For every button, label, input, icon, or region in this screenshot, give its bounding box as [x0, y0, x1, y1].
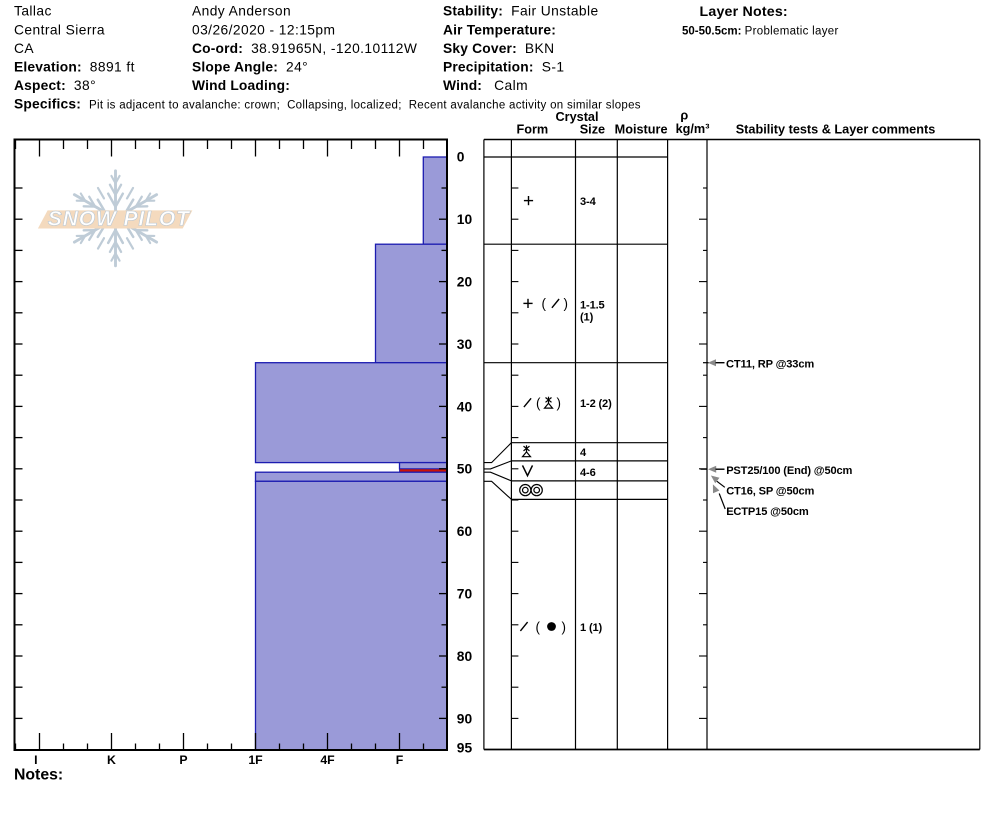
svg-text:4-6: 4-6 — [580, 467, 596, 479]
svg-text:3-4: 3-4 — [580, 196, 597, 208]
svg-text:Wind: Calm: Wind: Calm — [443, 78, 528, 93]
svg-text:): ) — [557, 396, 561, 411]
svg-text:Air Temperature:: Air Temperature: — [443, 22, 556, 37]
svg-text:Tallac: Tallac — [14, 4, 52, 19]
svg-text:): ) — [562, 619, 566, 634]
svg-text:Form: Form — [516, 123, 548, 137]
svg-text:CA: CA — [14, 41, 34, 56]
svg-text:Aspect: 38°: Aspect: 38° — [14, 78, 96, 93]
svg-text:ECTP15 @50cm: ECTP15 @50cm — [726, 506, 809, 518]
svg-text:Stability tests & Layer commen: Stability tests & Layer comments — [736, 123, 936, 137]
svg-text:60: 60 — [457, 524, 473, 539]
svg-text:(: ( — [536, 396, 541, 411]
svg-text:20: 20 — [457, 275, 473, 290]
svg-text:Specifics: Pit is adjacent to: Specifics: Pit is adjacent to avalanche:… — [14, 96, 641, 111]
svg-text:ρ: ρ — [680, 109, 688, 123]
svg-text:Elevation: 8891 ft: Elevation: 8891 ft — [14, 60, 135, 75]
svg-text:PST25/100 (End) @50cm: PST25/100 (End) @50cm — [726, 465, 852, 477]
svg-text:Size: Size — [580, 123, 605, 137]
svg-text:Co-ord: 38.91965N, -120.10112: Co-ord: 38.91965N, -120.10112W — [192, 41, 417, 56]
svg-text:Moisture: Moisture — [615, 123, 668, 137]
svg-text:Layer Notes:: Layer Notes: — [700, 4, 788, 20]
svg-text:): ) — [564, 296, 568, 311]
svg-text:1 (1): 1 (1) — [580, 622, 603, 634]
svg-text:CT11, RP @33cm: CT11, RP @33cm — [726, 358, 814, 370]
svg-text:K: K — [107, 753, 116, 767]
svg-text:50-50.5cm: Problematic layer: 50-50.5cm: Problematic layer — [682, 25, 839, 37]
svg-text:(: ( — [536, 619, 541, 634]
svg-text:1-2 (2): 1-2 (2) — [580, 398, 612, 410]
svg-text:Wind Loading:: Wind Loading: — [192, 78, 290, 93]
svg-text:4F: 4F — [320, 753, 335, 767]
svg-text:Slope Angle: 24°: Slope Angle: 24° — [192, 60, 308, 75]
svg-text:30: 30 — [457, 337, 473, 352]
svg-text:(: ( — [542, 296, 547, 311]
svg-text:Sky Cover: BKN: Sky Cover: BKN — [443, 41, 555, 56]
svg-text:Stability: Fair Unstable: Stability: Fair Unstable — [443, 4, 599, 19]
svg-text:1F: 1F — [248, 753, 263, 767]
svg-text:0: 0 — [457, 150, 465, 165]
svg-text:Notes:: Notes: — [14, 767, 63, 784]
svg-text:50: 50 — [457, 462, 473, 477]
svg-text:10: 10 — [457, 212, 473, 227]
svg-text:95: 95 — [457, 741, 473, 756]
svg-text:I: I — [34, 753, 37, 767]
svg-text:80: 80 — [457, 649, 473, 664]
svg-text:Precipitation: S-1: Precipitation: S-1 — [443, 60, 564, 75]
svg-text:F: F — [396, 753, 404, 767]
svg-text:03/26/2020 - 12:15pm: 03/26/2020 - 12:15pm — [192, 22, 335, 37]
svg-text:1-1.5: 1-1.5 — [580, 299, 605, 311]
svg-text:Central Sierra: Central Sierra — [14, 22, 105, 37]
svg-text:40: 40 — [457, 399, 473, 414]
svg-text:4: 4 — [580, 447, 587, 459]
svg-text:CT16, SP @50cm: CT16, SP @50cm — [726, 486, 814, 498]
svg-text:SNOW PILOT: SNOW PILOT — [48, 207, 191, 230]
svg-text:(1): (1) — [580, 311, 594, 323]
svg-text:70: 70 — [457, 587, 473, 602]
svg-text:Andy Anderson: Andy Anderson — [192, 4, 291, 19]
svg-text:90: 90 — [457, 711, 473, 726]
svg-text:kg/m³: kg/m³ — [676, 122, 710, 136]
svg-text:P: P — [179, 753, 187, 767]
